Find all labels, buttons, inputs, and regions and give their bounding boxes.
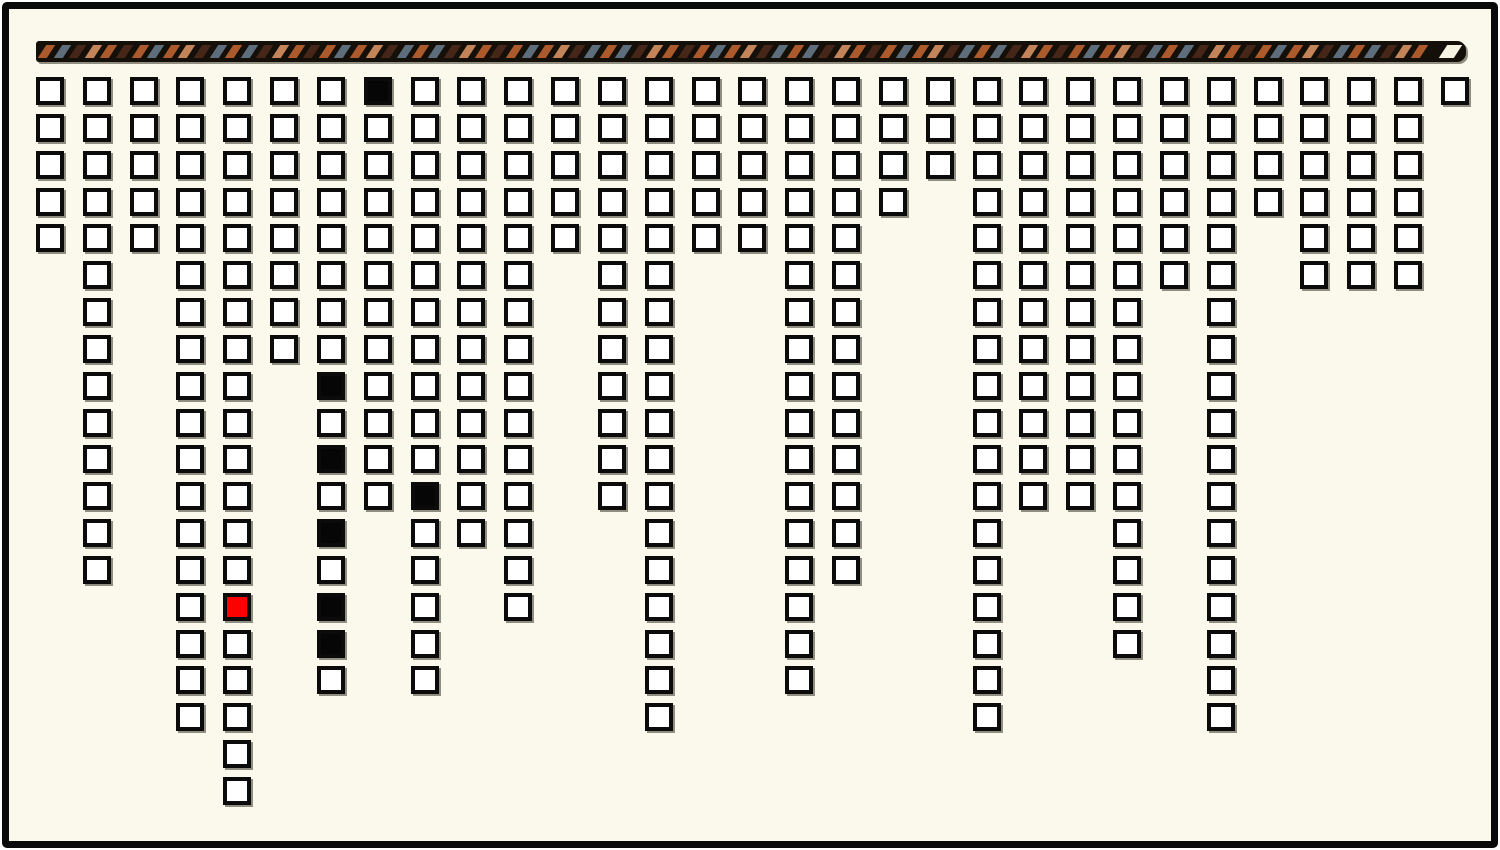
grid-cell[interactable] <box>1066 77 1094 105</box>
filled-cell[interactable] <box>317 519 345 547</box>
grid-cell[interactable] <box>223 445 251 473</box>
grid-cell[interactable] <box>645 188 673 216</box>
grid-cell[interactable] <box>130 224 158 252</box>
grid-cell[interactable] <box>1347 151 1375 179</box>
grid-cell[interactable] <box>83 409 111 437</box>
grid-cell[interactable] <box>457 409 485 437</box>
grid-cell[interactable] <box>1207 556 1235 584</box>
grid-cell[interactable] <box>176 114 204 142</box>
grid-cell[interactable] <box>1066 188 1094 216</box>
grid-cell[interactable] <box>317 261 345 289</box>
grid-cell[interactable] <box>645 409 673 437</box>
grid-cell[interactable] <box>83 445 111 473</box>
grid-cell[interactable] <box>1394 188 1422 216</box>
grid-cell[interactable] <box>832 482 860 510</box>
grid-cell[interactable] <box>973 151 1001 179</box>
grid-cell[interactable] <box>223 151 251 179</box>
grid-cell[interactable] <box>364 372 392 400</box>
grid-cell[interactable] <box>973 372 1001 400</box>
grid-cell[interactable] <box>1207 77 1235 105</box>
grid-cell[interactable] <box>457 77 485 105</box>
grid-cell[interactable] <box>1019 409 1047 437</box>
grid-cell[interactable] <box>83 335 111 363</box>
grid-cell[interactable] <box>832 151 860 179</box>
grid-cell[interactable] <box>1066 224 1094 252</box>
grid-cell[interactable] <box>1347 188 1375 216</box>
grid-cell[interactable] <box>1347 224 1375 252</box>
grid-cell[interactable] <box>1394 151 1422 179</box>
grid-cell[interactable] <box>83 372 111 400</box>
grid-cell[interactable] <box>973 556 1001 584</box>
grid-cell[interactable] <box>83 151 111 179</box>
grid-cell[interactable] <box>832 114 860 142</box>
grid-cell[interactable] <box>1113 298 1141 326</box>
grid-cell[interactable] <box>83 188 111 216</box>
grid-cell[interactable] <box>317 151 345 179</box>
grid-cell[interactable] <box>1019 298 1047 326</box>
grid-cell[interactable] <box>1207 188 1235 216</box>
grid-cell[interactable] <box>270 298 298 326</box>
grid-cell[interactable] <box>785 224 813 252</box>
grid-cell[interactable] <box>1160 77 1188 105</box>
grid-cell[interactable] <box>879 114 907 142</box>
grid-cell[interactable] <box>1300 114 1328 142</box>
grid-cell[interactable] <box>785 188 813 216</box>
grid-cell[interactable] <box>1113 335 1141 363</box>
grid-cell[interactable] <box>832 335 860 363</box>
grid-cell[interactable] <box>504 409 532 437</box>
grid-cell[interactable] <box>645 519 673 547</box>
grid-cell[interactable] <box>1066 445 1094 473</box>
grid-cell[interactable] <box>36 188 64 216</box>
grid-cell[interactable] <box>785 261 813 289</box>
grid-cell[interactable] <box>411 261 439 289</box>
grid-cell[interactable] <box>364 188 392 216</box>
filled-cell[interactable] <box>411 482 439 510</box>
grid-cell[interactable] <box>223 114 251 142</box>
grid-cell[interactable] <box>176 261 204 289</box>
grid-cell[interactable] <box>223 372 251 400</box>
grid-cell[interactable] <box>1160 188 1188 216</box>
grid-cell[interactable] <box>270 188 298 216</box>
grid-cell[interactable] <box>832 519 860 547</box>
grid-cell[interactable] <box>1254 151 1282 179</box>
grid-cell[interactable] <box>785 630 813 658</box>
grid-cell[interactable] <box>411 556 439 584</box>
grid-cell[interactable] <box>176 445 204 473</box>
grid-cell[interactable] <box>36 77 64 105</box>
grid-cell[interactable] <box>364 298 392 326</box>
grid-cell[interactable] <box>457 482 485 510</box>
grid-cell[interactable] <box>832 298 860 326</box>
grid-cell[interactable] <box>598 335 626 363</box>
grid-cell[interactable] <box>598 114 626 142</box>
grid-cell[interactable] <box>1066 409 1094 437</box>
grid-cell[interactable] <box>1066 372 1094 400</box>
grid-cell[interactable] <box>457 519 485 547</box>
grid-cell[interactable] <box>785 298 813 326</box>
grid-cell[interactable] <box>1207 703 1235 731</box>
grid-cell[interactable] <box>176 409 204 437</box>
grid-cell[interactable] <box>270 335 298 363</box>
grid-cell[interactable] <box>1207 593 1235 621</box>
grid-cell[interactable] <box>176 298 204 326</box>
grid-cell[interactable] <box>738 77 766 105</box>
grid-cell[interactable] <box>1254 77 1282 105</box>
grid-cell[interactable] <box>832 224 860 252</box>
grid-cell[interactable] <box>785 77 813 105</box>
grid-cell[interactable] <box>973 593 1001 621</box>
grid-cell[interactable] <box>598 151 626 179</box>
grid-cell[interactable] <box>1207 224 1235 252</box>
grid-cell[interactable] <box>270 261 298 289</box>
grid-cell[interactable] <box>176 593 204 621</box>
grid-cell[interactable] <box>130 77 158 105</box>
grid-cell[interactable] <box>223 703 251 731</box>
grid-cell[interactable] <box>176 188 204 216</box>
grid-cell[interactable] <box>1019 188 1047 216</box>
grid-cell[interactable] <box>1113 114 1141 142</box>
grid-cell[interactable] <box>457 151 485 179</box>
grid-cell[interactable] <box>1160 151 1188 179</box>
grid-cell[interactable] <box>411 630 439 658</box>
grid-cell[interactable] <box>1019 372 1047 400</box>
grid-cell[interactable] <box>973 261 1001 289</box>
grid-cell[interactable] <box>223 519 251 547</box>
grid-cell[interactable] <box>504 151 532 179</box>
grid-cell[interactable] <box>785 114 813 142</box>
grid-cell[interactable] <box>457 224 485 252</box>
grid-cell[interactable] <box>83 298 111 326</box>
grid-cell[interactable] <box>645 666 673 694</box>
grid-cell[interactable] <box>598 261 626 289</box>
filled-cell[interactable] <box>317 630 345 658</box>
grid-cell[interactable] <box>1347 77 1375 105</box>
grid-cell[interactable] <box>692 224 720 252</box>
grid-cell[interactable] <box>973 519 1001 547</box>
grid-cell[interactable] <box>1207 666 1235 694</box>
grid-cell[interactable] <box>83 224 111 252</box>
grid-cell[interactable] <box>832 372 860 400</box>
grid-cell[interactable] <box>130 188 158 216</box>
grid-cell[interactable] <box>176 703 204 731</box>
grid-cell[interactable] <box>738 224 766 252</box>
grid-cell[interactable] <box>598 409 626 437</box>
grid-cell[interactable] <box>83 482 111 510</box>
grid-cell[interactable] <box>1113 445 1141 473</box>
grid-cell[interactable] <box>317 556 345 584</box>
grid-cell[interactable] <box>973 482 1001 510</box>
grid-cell[interactable] <box>223 556 251 584</box>
grid-cell[interactable] <box>176 372 204 400</box>
grid-cell[interactable] <box>973 666 1001 694</box>
grid-cell[interactable] <box>645 298 673 326</box>
grid-cell[interactable] <box>1207 372 1235 400</box>
grid-cell[interactable] <box>457 445 485 473</box>
grid-cell[interactable] <box>973 703 1001 731</box>
grid-cell[interactable] <box>317 409 345 437</box>
grid-cell[interactable] <box>504 335 532 363</box>
grid-cell[interactable] <box>504 298 532 326</box>
grid-cell[interactable] <box>411 151 439 179</box>
grid-cell[interactable] <box>504 77 532 105</box>
grid-cell[interactable] <box>645 482 673 510</box>
grid-cell[interactable] <box>1254 188 1282 216</box>
grid-cell[interactable] <box>364 482 392 510</box>
grid-cell[interactable] <box>176 151 204 179</box>
grid-cell[interactable] <box>411 593 439 621</box>
grid-cell[interactable] <box>176 335 204 363</box>
grid-cell[interactable] <box>551 77 579 105</box>
grid-cell[interactable] <box>364 114 392 142</box>
grid-cell[interactable] <box>83 77 111 105</box>
grid-cell[interactable] <box>973 630 1001 658</box>
grid-cell[interactable] <box>785 409 813 437</box>
grid-cell[interactable] <box>1113 151 1141 179</box>
grid-cell[interactable] <box>364 445 392 473</box>
grid-cell[interactable] <box>1019 261 1047 289</box>
grid-cell[interactable] <box>1019 482 1047 510</box>
grid-cell[interactable] <box>317 298 345 326</box>
grid-cell[interactable] <box>270 151 298 179</box>
grid-cell[interactable] <box>785 445 813 473</box>
grid-cell[interactable] <box>1113 372 1141 400</box>
grid-cell[interactable] <box>270 114 298 142</box>
grid-cell[interactable] <box>973 114 1001 142</box>
grid-cell[interactable] <box>926 77 954 105</box>
filled-cell[interactable] <box>317 593 345 621</box>
grid-cell[interactable] <box>317 77 345 105</box>
grid-cell[interactable] <box>1394 261 1422 289</box>
grid-cell[interactable] <box>1207 114 1235 142</box>
grid-cell[interactable] <box>973 188 1001 216</box>
grid-cell[interactable] <box>270 224 298 252</box>
grid-cell[interactable] <box>223 777 251 805</box>
grid-cell[interactable] <box>1394 114 1422 142</box>
grid-cell[interactable] <box>457 188 485 216</box>
grid-cell[interactable] <box>1066 261 1094 289</box>
grid-cell[interactable] <box>176 666 204 694</box>
grid-cell[interactable] <box>1019 224 1047 252</box>
grid-cell[interactable] <box>785 151 813 179</box>
grid-cell[interactable] <box>411 298 439 326</box>
grid-cell[interactable] <box>973 409 1001 437</box>
grid-cell[interactable] <box>1394 224 1422 252</box>
grid-cell[interactable] <box>83 556 111 584</box>
grid-cell[interactable] <box>1113 409 1141 437</box>
grid-cell[interactable] <box>645 630 673 658</box>
grid-cell[interactable] <box>1066 151 1094 179</box>
grid-cell[interactable] <box>504 556 532 584</box>
grid-cell[interactable] <box>1113 188 1141 216</box>
grid-cell[interactable] <box>692 188 720 216</box>
grid-cell[interactable] <box>692 77 720 105</box>
grid-cell[interactable] <box>1300 188 1328 216</box>
filled-cell[interactable] <box>364 77 392 105</box>
grid-cell[interactable] <box>738 151 766 179</box>
grid-cell[interactable] <box>1394 77 1422 105</box>
grid-cell[interactable] <box>176 77 204 105</box>
grid-cell[interactable] <box>457 298 485 326</box>
grid-cell[interactable] <box>551 151 579 179</box>
grid-cell[interactable] <box>645 372 673 400</box>
grid-cell[interactable] <box>176 630 204 658</box>
grid-cell[interactable] <box>973 298 1001 326</box>
grid-cell[interactable] <box>317 114 345 142</box>
grid-cell[interactable] <box>598 188 626 216</box>
grid-cell[interactable] <box>411 188 439 216</box>
grid-cell[interactable] <box>645 556 673 584</box>
grid-cell[interactable] <box>645 151 673 179</box>
grid-cell[interactable] <box>832 261 860 289</box>
grid-cell[interactable] <box>457 261 485 289</box>
grid-cell[interactable] <box>317 482 345 510</box>
grid-cell[interactable] <box>1113 261 1141 289</box>
grid-cell[interactable] <box>1019 77 1047 105</box>
grid-cell[interactable] <box>36 151 64 179</box>
grid-cell[interactable] <box>411 519 439 547</box>
grid-cell[interactable] <box>1300 224 1328 252</box>
grid-cell[interactable] <box>1113 519 1141 547</box>
grid-cell[interactable] <box>176 519 204 547</box>
grid-cell[interactable] <box>364 224 392 252</box>
grid-cell[interactable] <box>645 114 673 142</box>
grid-cell[interactable] <box>223 261 251 289</box>
grid-cell[interactable] <box>83 519 111 547</box>
grid-cell[interactable] <box>364 261 392 289</box>
grid-cell[interactable] <box>130 151 158 179</box>
grid-cell[interactable] <box>645 224 673 252</box>
grid-cell[interactable] <box>504 114 532 142</box>
grid-cell[interactable] <box>223 335 251 363</box>
grid-cell[interactable] <box>973 224 1001 252</box>
grid-cell[interactable] <box>785 372 813 400</box>
grid-cell[interactable] <box>411 409 439 437</box>
grid-cell[interactable] <box>598 372 626 400</box>
grid-cell[interactable] <box>598 298 626 326</box>
grid-cell[interactable] <box>785 666 813 694</box>
grid-cell[interactable] <box>1207 261 1235 289</box>
grid-cell[interactable] <box>1019 445 1047 473</box>
grid-cell[interactable] <box>1160 224 1188 252</box>
grid-cell[interactable] <box>504 593 532 621</box>
grid-cell[interactable] <box>832 77 860 105</box>
grid-cell[interactable] <box>879 188 907 216</box>
grid-cell[interactable] <box>1160 114 1188 142</box>
grid-cell[interactable] <box>645 703 673 731</box>
grid-cell[interactable] <box>83 261 111 289</box>
grid-cell[interactable] <box>785 556 813 584</box>
grid-cell[interactable] <box>973 445 1001 473</box>
grid-cell[interactable] <box>645 77 673 105</box>
grid-cell[interactable] <box>598 445 626 473</box>
grid-cell[interactable] <box>223 482 251 510</box>
grid-cell[interactable] <box>504 261 532 289</box>
grid-cell[interactable] <box>411 666 439 694</box>
grid-cell[interactable] <box>879 77 907 105</box>
grid-cell[interactable] <box>598 482 626 510</box>
grid-cell[interactable] <box>364 151 392 179</box>
grid-cell[interactable] <box>692 151 720 179</box>
grid-cell[interactable] <box>223 188 251 216</box>
grid-cell[interactable] <box>785 519 813 547</box>
grid-cell[interactable] <box>504 482 532 510</box>
grid-cell[interactable] <box>1347 261 1375 289</box>
grid-cell[interactable] <box>1113 224 1141 252</box>
grid-cell[interactable] <box>879 151 907 179</box>
grid-cell[interactable] <box>785 593 813 621</box>
grid-cell[interactable] <box>223 77 251 105</box>
grid-cell[interactable] <box>551 114 579 142</box>
grid-cell[interactable] <box>1207 482 1235 510</box>
grid-cell[interactable] <box>1019 151 1047 179</box>
grid-cell[interactable] <box>223 630 251 658</box>
grid-cell[interactable] <box>36 224 64 252</box>
grid-cell[interactable] <box>1066 114 1094 142</box>
grid-cell[interactable] <box>504 372 532 400</box>
grid-cell[interactable] <box>598 77 626 105</box>
grid-cell[interactable] <box>1207 298 1235 326</box>
grid-cell[interactable] <box>364 335 392 363</box>
grid-cell[interactable] <box>645 335 673 363</box>
grid-cell[interactable] <box>504 445 532 473</box>
grid-cell[interactable] <box>176 556 204 584</box>
grid-cell[interactable] <box>317 666 345 694</box>
grid-cell[interactable] <box>1207 445 1235 473</box>
grid-cell[interactable] <box>598 224 626 252</box>
grid-cell[interactable] <box>832 188 860 216</box>
grid-cell[interactable] <box>1254 114 1282 142</box>
grid-cell[interactable] <box>973 77 1001 105</box>
grid-cell[interactable] <box>1347 114 1375 142</box>
grid-cell[interactable] <box>1113 482 1141 510</box>
grid-cell[interactable] <box>411 445 439 473</box>
grid-cell[interactable] <box>36 114 64 142</box>
grid-cell[interactable] <box>504 188 532 216</box>
grid-cell[interactable] <box>738 188 766 216</box>
grid-cell[interactable] <box>504 224 532 252</box>
grid-cell[interactable] <box>1207 630 1235 658</box>
filled-cell[interactable] <box>317 372 345 400</box>
grid-cell[interactable] <box>926 151 954 179</box>
active-cell[interactable] <box>223 593 251 621</box>
grid-cell[interactable] <box>1113 556 1141 584</box>
grid-cell[interactable] <box>411 335 439 363</box>
grid-cell[interactable] <box>176 482 204 510</box>
grid-cell[interactable] <box>785 482 813 510</box>
grid-cell[interactable] <box>411 114 439 142</box>
grid-cell[interactable] <box>832 409 860 437</box>
grid-cell[interactable] <box>457 335 485 363</box>
grid-cell[interactable] <box>1066 298 1094 326</box>
grid-cell[interactable] <box>645 261 673 289</box>
grid-cell[interactable] <box>832 556 860 584</box>
grid-cell[interactable] <box>223 298 251 326</box>
grid-cell[interactable] <box>270 77 298 105</box>
grid-cell[interactable] <box>364 409 392 437</box>
grid-cell[interactable] <box>83 114 111 142</box>
grid-cell[interactable] <box>223 666 251 694</box>
grid-cell[interactable] <box>1300 151 1328 179</box>
grid-cell[interactable] <box>1019 114 1047 142</box>
grid-cell[interactable] <box>317 224 345 252</box>
grid-cell[interactable] <box>551 224 579 252</box>
grid-cell[interactable] <box>645 445 673 473</box>
grid-cell[interactable] <box>223 409 251 437</box>
grid-cell[interactable] <box>1300 77 1328 105</box>
grid-cell[interactable] <box>411 372 439 400</box>
grid-cell[interactable] <box>551 188 579 216</box>
